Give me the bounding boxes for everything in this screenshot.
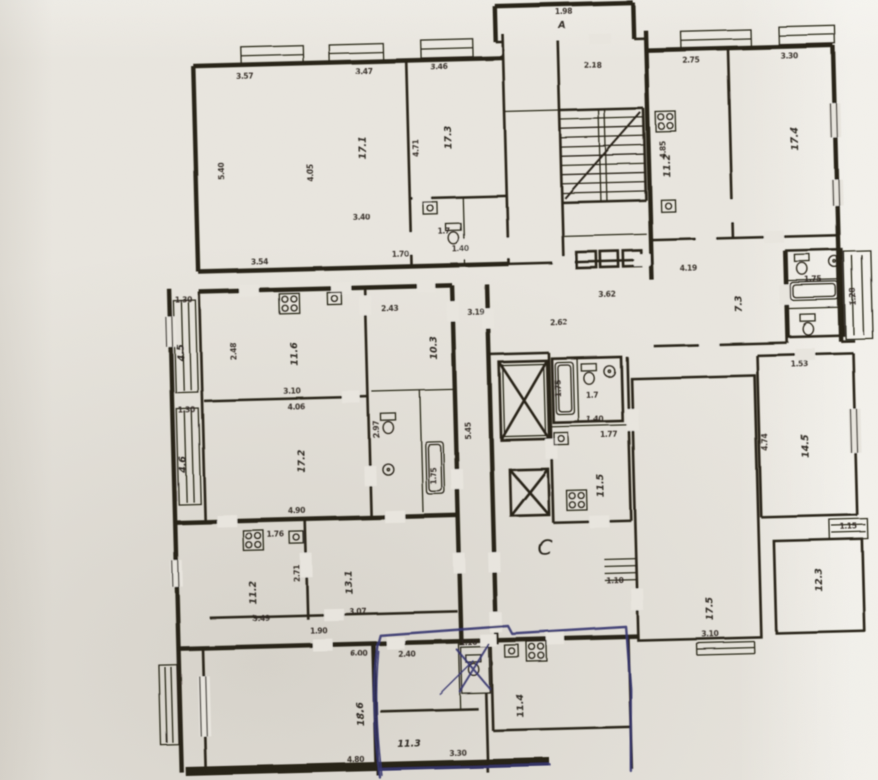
floorplan-drawing: 3.573.473.461.982.182.753.305.404.054.71… xyxy=(0,0,878,780)
paper-grain xyxy=(0,0,878,780)
scanned-floorplan-page: 3.573.473.461.982.182.753.305.404.054.71… xyxy=(0,0,878,780)
